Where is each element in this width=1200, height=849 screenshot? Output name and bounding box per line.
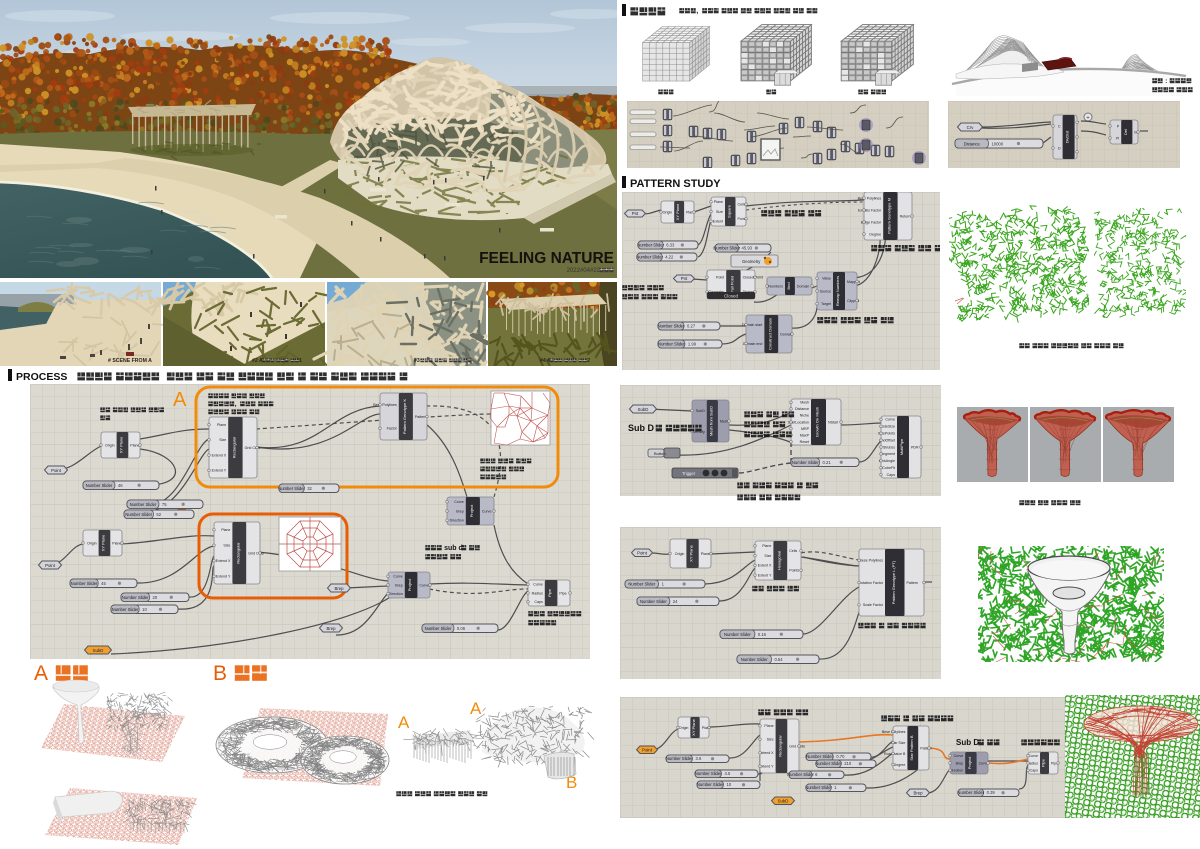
- svg-text:Number Slider: Number Slider: [792, 460, 819, 465]
- svg-text:Number Slider: Number Slider: [130, 502, 157, 507]
- svg-text:Number Slider: Number Slider: [640, 599, 667, 604]
- svg-text:Caps: Caps: [887, 473, 896, 477]
- svg-text:Point: Point: [716, 276, 724, 280]
- svg-text:Reset: Reset: [800, 440, 809, 444]
- svg-text:0.16: 0.16: [758, 632, 767, 637]
- svg-text:6.33: 6.33: [666, 243, 675, 248]
- svg-text:Origin: Origin: [675, 552, 685, 556]
- svg-text:Brep: Brep: [334, 586, 344, 591]
- svg-text:Number Slider: Number Slider: [86, 483, 113, 488]
- svg-text:Trigger: Trigger: [682, 471, 696, 476]
- svg-text:Size: Size: [716, 210, 723, 214]
- svg-text:XY Plane: XY Plane: [691, 718, 696, 735]
- svg-text:Origin: Origin: [87, 541, 97, 545]
- svg-text:Extent Y: Extent Y: [758, 573, 772, 577]
- svg-text:Plane: Plane: [714, 200, 723, 204]
- svg-text:32: 32: [307, 486, 312, 491]
- svg-text:0.54: 0.54: [774, 657, 783, 662]
- svg-text:Brep: Brep: [395, 583, 403, 587]
- svg-text:0.27: 0.27: [687, 324, 696, 329]
- svg-text:Curve: Curve: [419, 583, 429, 587]
- svg-text:Value: Value: [822, 277, 831, 281]
- svg-text:Number Slider: Number Slider: [741, 657, 768, 662]
- svg-text:Curve: Curve: [885, 418, 895, 422]
- svg-text:Crv: Crv: [967, 125, 975, 130]
- svg-text:,: ,: [235, 401, 239, 408]
- svg-text:XY Plane: XY Plane: [118, 436, 123, 453]
- svg-text:Origin: Origin: [679, 726, 689, 730]
- svg-text:PDR: PDR: [911, 445, 919, 449]
- svg-text:24: 24: [673, 599, 678, 604]
- svg-text:Size: Size: [764, 554, 771, 558]
- svg-text:Curve: Curve: [393, 575, 403, 579]
- svg-text:Number Slider: Number Slider: [658, 342, 685, 347]
- svg-text:Target: Target: [821, 302, 831, 306]
- svg-text:Size: Size: [219, 438, 226, 442]
- svg-text:Pattern Genotype K: Pattern Genotype K: [402, 399, 407, 434]
- svg-text:Grid Cells: Grid Cells: [248, 551, 264, 555]
- svg-text:# SCENE FROM A: # SCENE FROM A: [108, 358, 152, 364]
- svg-text:Number Slider: Number Slider: [122, 595, 149, 600]
- svg-text:NStart: NStart: [828, 420, 838, 424]
- svg-text:A: A: [470, 699, 482, 718]
- svg-text:2022#04#22: 2022#04#22: [567, 268, 602, 274]
- svg-text:C: C: [1058, 124, 1061, 128]
- svg-text:Number Slider: Number Slider: [713, 246, 740, 251]
- svg-text:1.99: 1.99: [688, 342, 697, 347]
- svg-text:+: +: [1086, 116, 1090, 122]
- svg-text:Bese Polylines: Bese Polylines: [373, 403, 397, 407]
- svg-text:Growth On Mesh: Growth On Mesh: [815, 407, 820, 437]
- svg-text:Extend Y: Extend Y: [212, 469, 227, 473]
- svg-text:Plane: Plane: [130, 443, 139, 447]
- svg-text:10: 10: [142, 607, 147, 612]
- svg-text:Number Slider: Number Slider: [658, 324, 685, 329]
- svg-text:Pattern Genotype L (PT): Pattern Genotype L (PT): [891, 560, 896, 604]
- svg-text:MRP: MRP: [801, 427, 810, 431]
- svg-text:#2 A: #2 A: [252, 358, 263, 364]
- svg-text:1: 1: [299, 358, 302, 364]
- svg-text:Project: Project: [407, 578, 412, 591]
- svg-text:Remap Numbers: Remap Numbers: [835, 276, 840, 306]
- svg-text:Strubss: Strubss: [883, 445, 895, 449]
- svg-text:Number Slider: Number Slider: [278, 486, 305, 491]
- svg-text:B: B: [213, 662, 233, 685]
- svg-text:Number Slider: Number Slider: [628, 582, 655, 587]
- svg-text:Brep: Brep: [456, 509, 464, 513]
- svg-text:Curve: Curve: [454, 500, 464, 504]
- svg-text:Distance: Distance: [795, 407, 809, 411]
- svg-text:Extent: Extent: [713, 219, 723, 223]
- svg-text:Closed: Closed: [724, 294, 739, 299]
- svg-text:Scale Factor: Scale Factor: [863, 603, 884, 607]
- svg-text:Number Slider: Number Slider: [637, 243, 664, 248]
- svg-text:Geometry: Geometry: [742, 259, 761, 264]
- svg-text:Pnt: Pnt: [632, 211, 639, 216]
- svg-text:Size: Size: [223, 544, 230, 548]
- svg-text:45.93: 45.93: [742, 246, 753, 251]
- svg-text:A: A: [398, 713, 410, 732]
- svg-text:SubD: SubD: [638, 407, 649, 412]
- svg-text:Number Slider: Number Slider: [425, 626, 452, 631]
- svg-text:Plane: Plane: [217, 423, 226, 427]
- svg-text:75: 75: [162, 502, 167, 507]
- svg-text:XY Plane: XY Plane: [675, 203, 680, 220]
- svg-text:Bese Polylines: Bese Polylines: [859, 558, 883, 562]
- svg-text:Direction: Direction: [450, 519, 464, 523]
- svg-text:Mesh: Mesh: [800, 401, 809, 405]
- svg-text:Pl: Pl: [1116, 136, 1119, 140]
- svg-text:Point: Point: [51, 468, 62, 473]
- svg-text:Origin: Origin: [663, 210, 673, 214]
- svg-text:FEELING NATURE: FEELING NATURE: [479, 250, 614, 267]
- svg-text:Pattern: Pattern: [907, 581, 919, 585]
- svg-text:PROCESS: PROCESS: [16, 371, 67, 383]
- svg-text:Source: Source: [820, 289, 831, 293]
- svg-text:Points: Points: [789, 569, 799, 573]
- svg-text:Plane: Plane: [762, 544, 771, 548]
- svg-text:Extend X: Extend X: [212, 453, 227, 457]
- svg-text:Radius: Radius: [532, 591, 543, 595]
- svg-text:Pnt: Pnt: [681, 276, 688, 281]
- svg-text:Distance: Distance: [964, 142, 981, 147]
- svg-text:DivDist: DivDist: [1065, 130, 1070, 144]
- svg-text:D: D: [1058, 146, 1061, 150]
- svg-text:Sub D: Sub D: [628, 423, 657, 433]
- svg-text:Closed Point: Closed Point: [743, 276, 763, 280]
- svg-text:#3: #3: [414, 358, 421, 364]
- svg-text:Del: Del: [1123, 129, 1128, 135]
- svg-text:Number Slider: Number Slider: [125, 512, 152, 517]
- svg-text:MultiPipe: MultiPipe: [899, 438, 904, 455]
- svg-text:Point: Point: [637, 550, 648, 555]
- svg-text:Number Slider: Number Slider: [71, 581, 98, 586]
- svg-text:Extratis Factor: Extratis Factor: [858, 208, 882, 212]
- svg-text:Bese Polylines: Bese Polylines: [858, 196, 882, 200]
- svg-text:Degree: Degree: [869, 232, 881, 236]
- svg-text:Niche: Niche: [800, 414, 809, 418]
- svg-text:Construct Domain: Construct Domain: [767, 318, 772, 350]
- svg-text:20: 20: [153, 595, 158, 600]
- svg-text:0.06: 0.06: [457, 626, 466, 631]
- svg-text:,: ,: [696, 8, 700, 15]
- svg-text:Bnd: Bnd: [786, 282, 791, 289]
- svg-text:Numbers: Numbers: [768, 284, 783, 288]
- svg-text:2: 2: [587, 358, 590, 364]
- svg-text:sub d: sub d: [442, 545, 463, 552]
- svg-text::: :: [1163, 78, 1169, 85]
- svg-text:0.21: 0.21: [823, 460, 832, 465]
- svg-text:Segment: Segment: [881, 452, 895, 456]
- svg-text:CubeFit: CubeFit: [882, 466, 895, 470]
- svg-text:Pattern Genotype M: Pattern Genotype M: [886, 198, 891, 234]
- svg-text:Mesh: Mesh: [720, 419, 729, 423]
- svg-text:Pipe: Pipe: [547, 588, 552, 597]
- svg-text:Rectangular: Rectangular: [231, 436, 236, 458]
- svg-text:Mesh from SubD: Mesh from SubD: [708, 406, 713, 436]
- svg-text:MaxP: MaxP: [800, 433, 810, 437]
- svg-text:4.22: 4.22: [665, 255, 674, 260]
- svg-text:Extend Y: Extend Y: [216, 575, 231, 579]
- svg-text:A: A: [173, 389, 187, 411]
- svg-text:XY Plane: XY Plane: [100, 534, 105, 551]
- svg-text:Pipe: Pipe: [559, 591, 566, 595]
- svg-text:46: 46: [118, 483, 123, 488]
- svg-text:PATTERN STUDY: PATTERN STUDY: [630, 178, 721, 190]
- svg-text:Curve: Curve: [533, 583, 543, 587]
- svg-text:Return: Return: [900, 214, 911, 218]
- svg-text:Cells: Cells: [789, 549, 797, 553]
- svg-text:Brep: Brep: [326, 626, 336, 631]
- svg-text:Project: Project: [469, 504, 474, 517]
- svg-text:Extend X: Extend X: [216, 559, 231, 563]
- svg-text:Direction: Direction: [389, 592, 403, 596]
- svg-text:Pattern: Pattern: [415, 415, 427, 419]
- svg-text:Plane: Plane: [221, 528, 230, 532]
- svg-text:Plane: Plane: [112, 541, 121, 545]
- svg-text:Plane: Plane: [701, 552, 710, 556]
- svg-text:Caps: Caps: [534, 600, 543, 604]
- svg-text:Hexagonal: Hexagonal: [776, 551, 781, 570]
- svg-text:Origin: Origin: [105, 443, 115, 447]
- svg-text:Point: Point: [45, 563, 56, 568]
- svg-text:Factor: Factor: [387, 427, 398, 431]
- svg-text:Domain: Domain: [797, 284, 809, 288]
- svg-text:Number Slider: Number Slider: [112, 607, 139, 612]
- svg-text:A: A: [34, 662, 53, 685]
- svg-text:Curve: Curve: [482, 509, 492, 513]
- svg-text:Pull Point: Pull Point: [729, 275, 734, 293]
- svg-text:52: 52: [156, 512, 161, 517]
- svg-text:Number Slider: Number Slider: [636, 255, 663, 260]
- svg-text:Point: Point: [642, 747, 653, 752]
- svg-text:Extent X: Extent X: [758, 564, 772, 568]
- svg-text:XY Plane: XY Plane: [689, 544, 694, 561]
- svg-text:Rectangular: Rectangular: [235, 542, 240, 564]
- svg-text:#4 A: #4 A: [540, 358, 551, 364]
- svg-text:SubD: SubD: [696, 409, 705, 413]
- svg-text:Number Slider: Number Slider: [724, 632, 751, 637]
- svg-text:45: 45: [101, 581, 106, 586]
- svg-text:10000: 10000: [991, 142, 1003, 147]
- svg-text:Rotation Factor: Rotation Factor: [858, 581, 883, 585]
- svg-text:Square: Square: [726, 204, 731, 218]
- svg-text:Button: Button: [654, 451, 666, 456]
